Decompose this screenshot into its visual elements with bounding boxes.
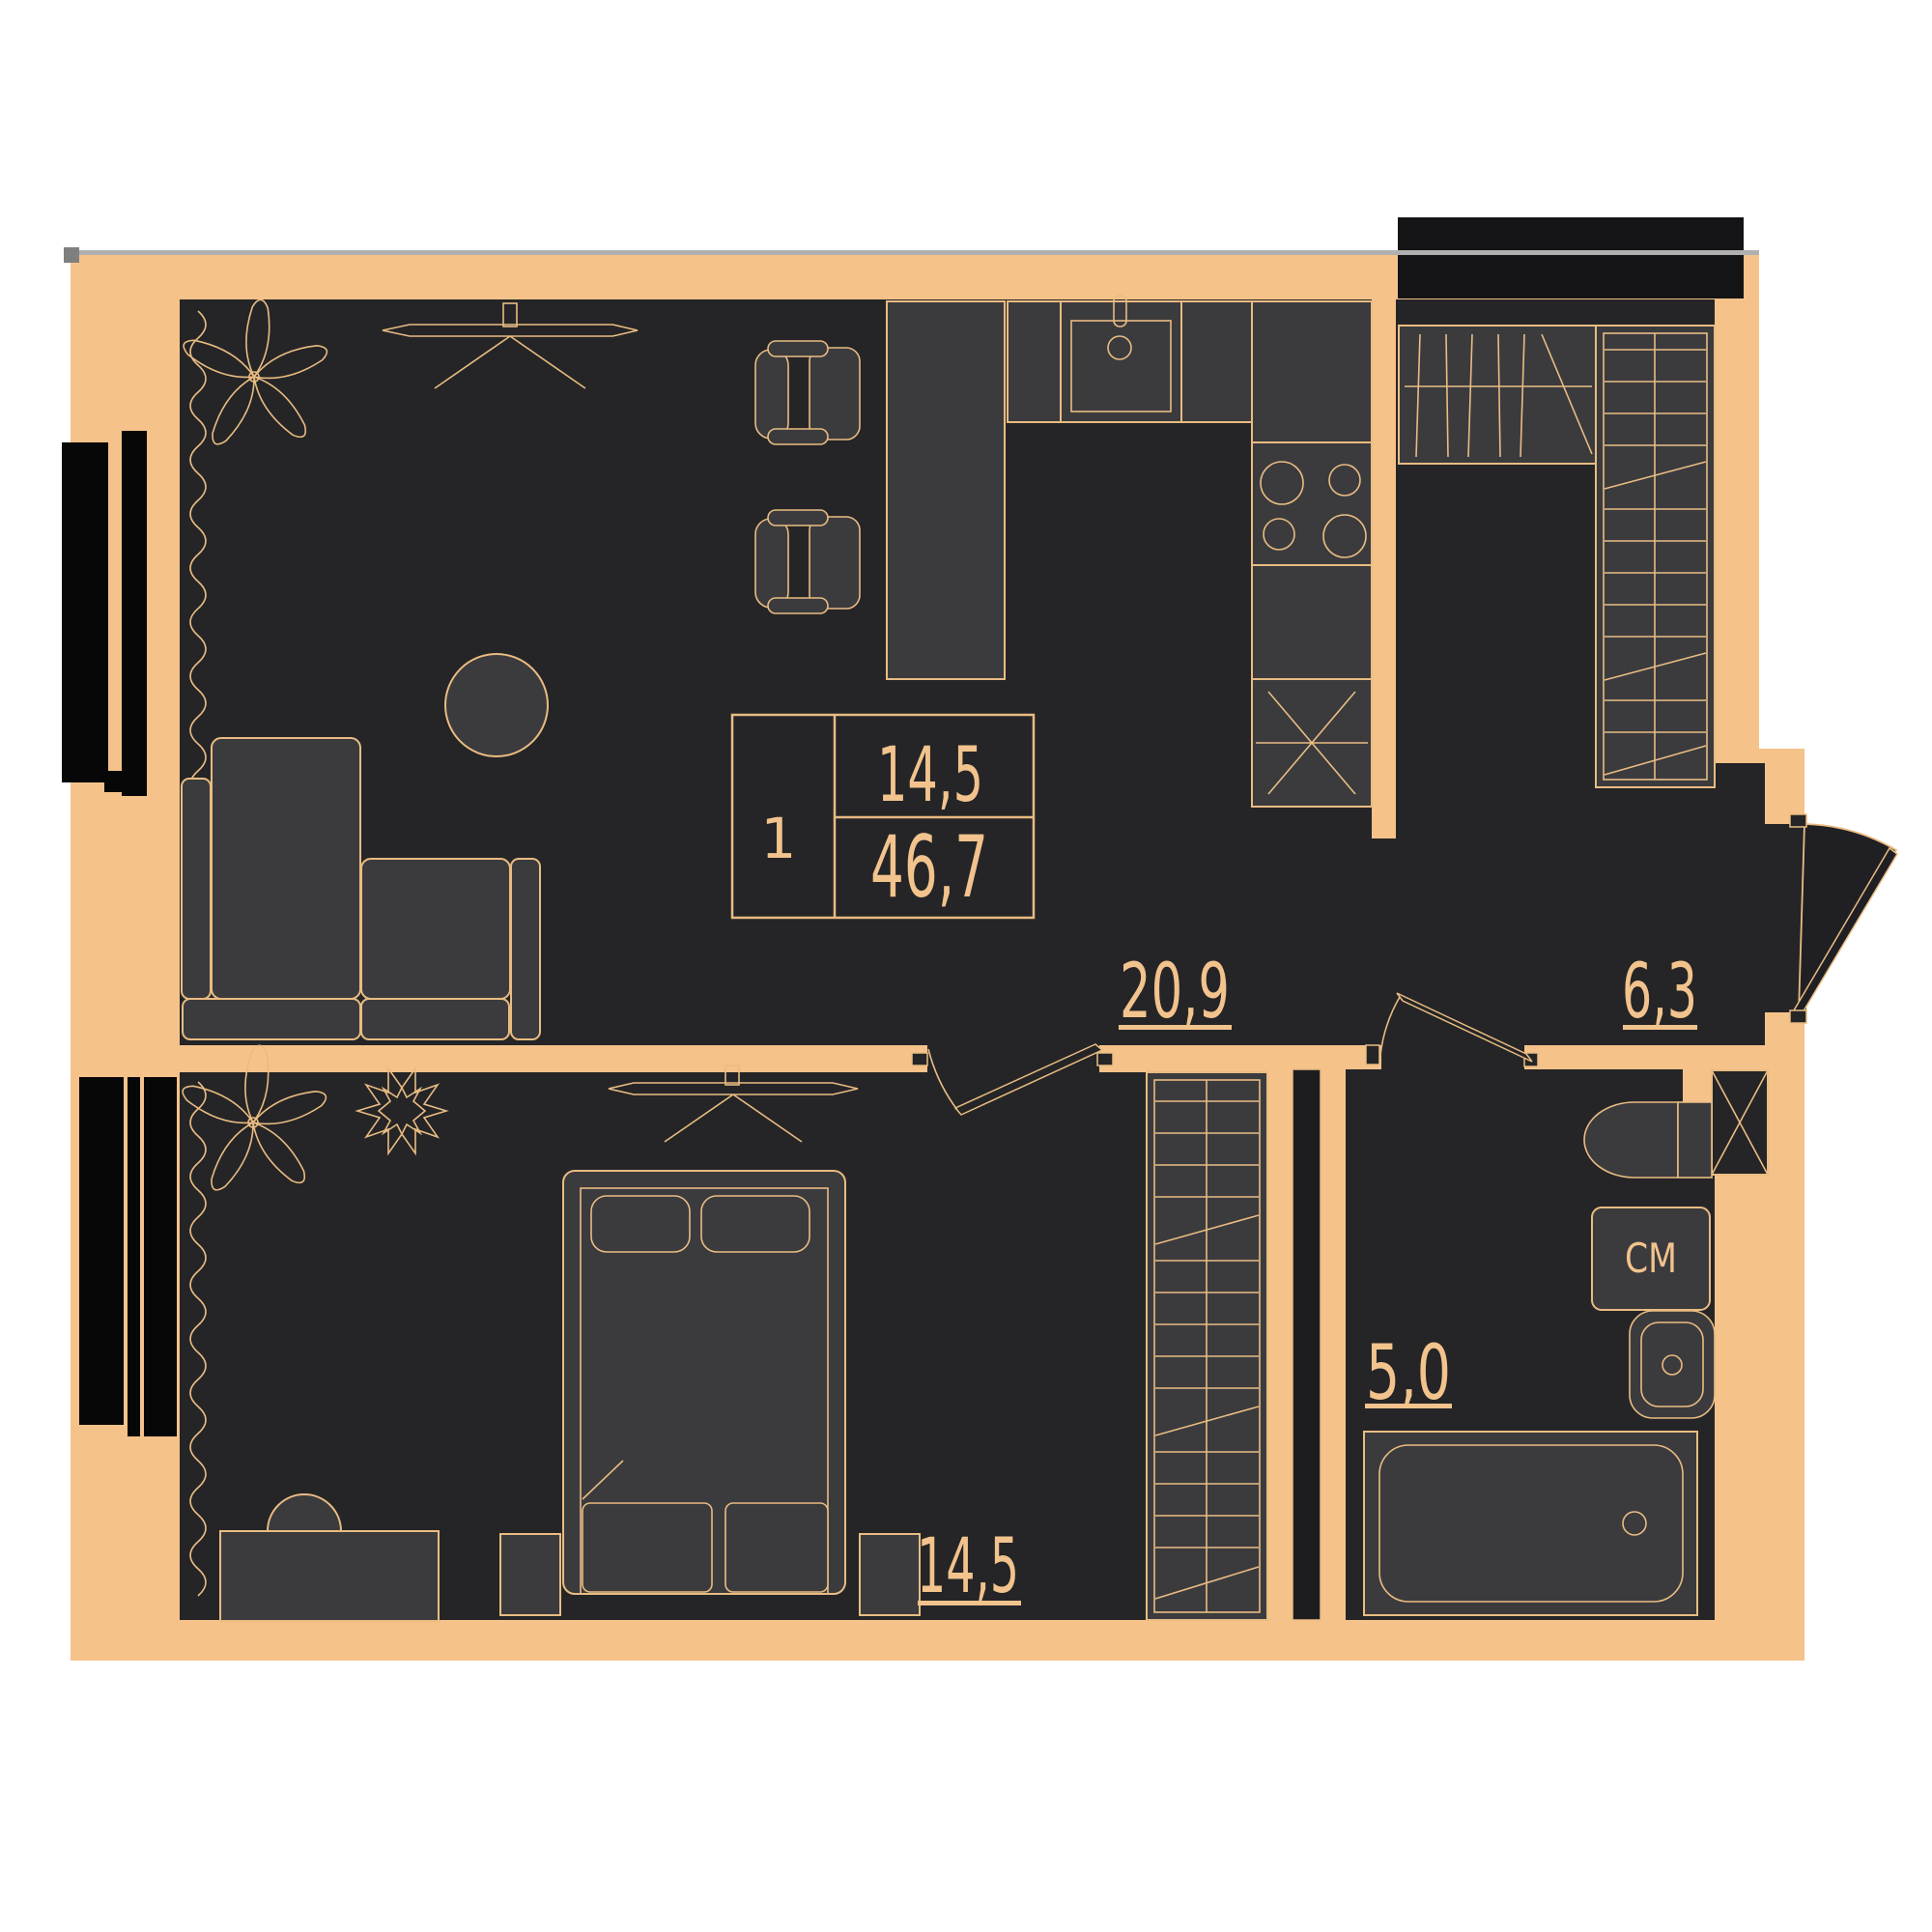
floor-plan: СМ 1 14,5 46,7 20,9 6,3 5,0 14,5 [0,0,1932,1932]
vent-shaft-top [1398,217,1744,298]
total-area-value: 46,7 [870,817,988,917]
bathtub [1364,1432,1697,1615]
pillow [701,1196,810,1252]
window-living [62,431,147,796]
bed [563,1171,845,1594]
area-label-bedroom: 14,5 [917,1523,1019,1610]
area-label-living-kitchen: 20,9 [1120,949,1230,1036]
dresser [220,1531,439,1621]
window-bedroom [79,1077,177,1436]
washing-machine: СМ [1592,1207,1710,1310]
kitchen-hall-passage [1372,838,1396,1045]
wardrobe-bedroom [1147,1072,1267,1620]
nightstand [500,1534,560,1615]
toilet-icon [1584,1102,1712,1178]
wardrobe-hall [1596,326,1715,787]
entrance-nook-floor [1715,763,1765,1045]
rooms-count: 1 [761,806,797,871]
kitchen-island-counter [887,301,1005,679]
pillow [591,1196,690,1252]
plumbing-shaft [1293,1069,1321,1620]
coffee-table [445,654,548,756]
entrance-door [1790,814,1897,1023]
room-area-value: 14,5 [877,732,983,819]
coat-rack-closet [1399,326,1596,464]
floor-plan-canvas: СМ 1 14,5 46,7 20,9 6,3 5,0 14,5 [0,0,1932,1932]
vent-shaft-icon [1712,1070,1768,1175]
bathroom-door-opening [1381,1045,1524,1069]
area-label-hallway: 6,3 [1622,949,1697,1036]
nightstand [860,1534,920,1615]
washing-machine-label: СМ [1625,1235,1677,1282]
bathroom-sink-icon [1630,1311,1715,1418]
